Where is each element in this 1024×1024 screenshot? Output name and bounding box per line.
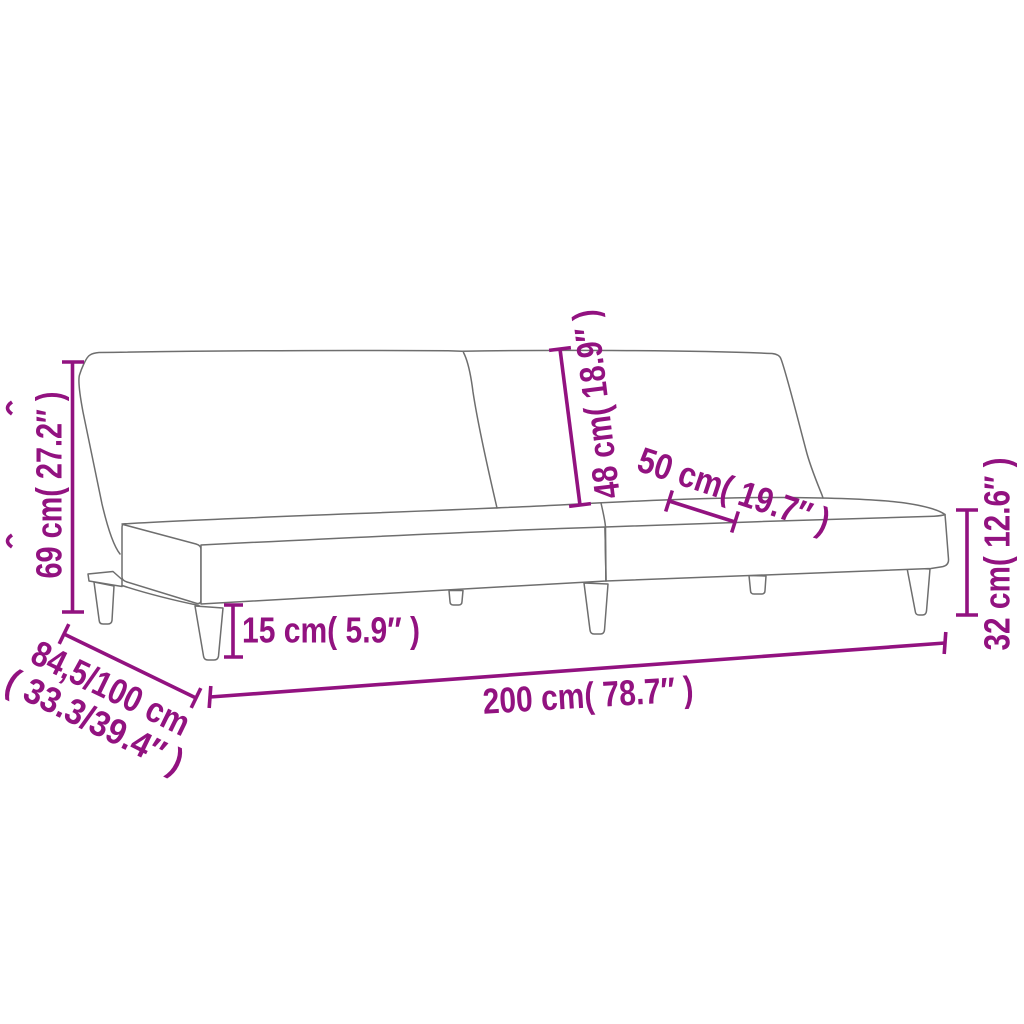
svg-text:32 cm( 12.6″ ): 32 cm( 12.6″ ) xyxy=(977,458,1018,651)
svg-text:69 cm( 27.2″ ): 69 cm( 27.2″ ) xyxy=(29,392,70,579)
svg-text:15 cm( 5.9″ ): 15 cm( 5.9″ ) xyxy=(242,610,420,651)
